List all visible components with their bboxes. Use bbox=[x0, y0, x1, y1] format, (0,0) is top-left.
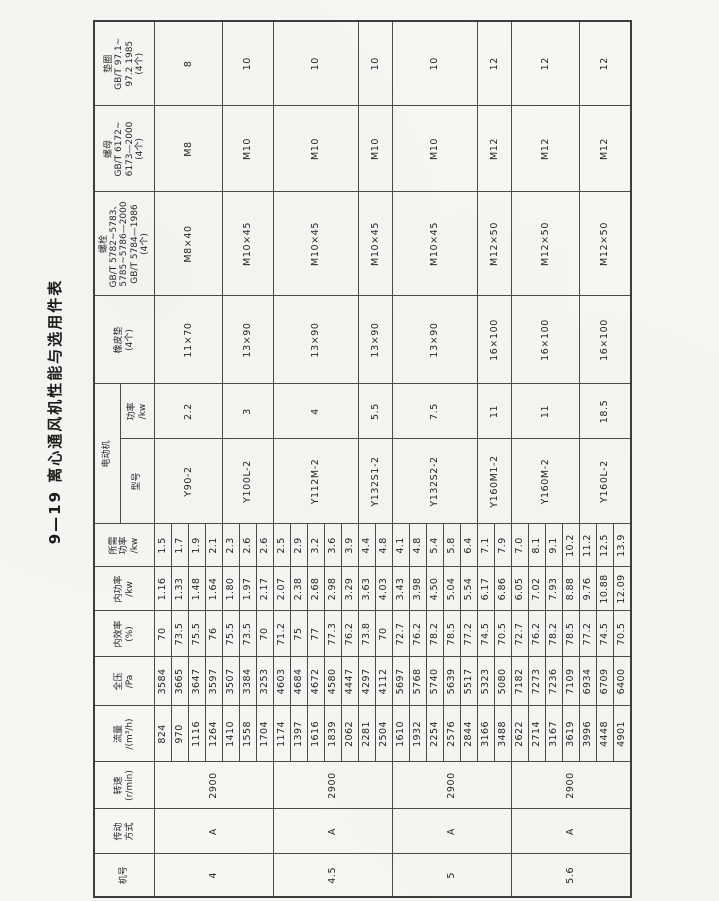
fan-performance-table: 机号 传动 方式 转速 (r/min) 流量 /(m³/h) 全压 /Pa 内效… bbox=[93, 20, 632, 898]
cell-chuandong: A bbox=[512, 809, 631, 854]
cell-xiangpidian: 16×100 bbox=[512, 296, 580, 384]
cell-suoxugonglv: 9.1 bbox=[546, 524, 563, 567]
cell-quanya: 3647 bbox=[189, 657, 206, 706]
cell-neixiaolv: 78.2 bbox=[427, 611, 444, 657]
cell-gonglv: 5.5 bbox=[359, 384, 393, 439]
cell-neixiaolv: 78.5 bbox=[444, 611, 461, 657]
cell-suoxugonglv: 2.5 bbox=[274, 524, 291, 567]
cell-liuliang: 1116 bbox=[189, 706, 206, 762]
cell-xiangpidian: 16×100 bbox=[580, 296, 631, 384]
cell-jihao: 4.5 bbox=[274, 854, 393, 897]
header-xiangpidian: 橡皮垫 (4个) bbox=[94, 296, 155, 384]
cell-quanya: 4684 bbox=[291, 657, 308, 706]
cell-suoxugonglv: 7.0 bbox=[512, 524, 529, 567]
cell-neixiaolv: 70.5 bbox=[614, 611, 631, 657]
cell-suoxugonglv: 2.9 bbox=[291, 524, 308, 567]
cell-xiangpidian: 11×70 bbox=[155, 296, 223, 384]
cell-liuliang: 1932 bbox=[410, 706, 427, 762]
cell-liuliang: 2622 bbox=[512, 706, 529, 762]
cell-quanya: 4447 bbox=[342, 657, 359, 706]
cell-dianquan: 8 bbox=[155, 21, 223, 106]
table-body: 4A29008243584701.161.5Y90-22.211×70M8×40… bbox=[155, 21, 631, 897]
cell-luomu: M12 bbox=[478, 106, 512, 192]
cell-neixiaolv: 72.7 bbox=[512, 611, 529, 657]
cell-liuliang: 1410 bbox=[223, 706, 240, 762]
cell-quanya: 5697 bbox=[393, 657, 410, 706]
cell-neixiaolv: 71.2 bbox=[274, 611, 291, 657]
header-luomu: 螺母 GB/T 6172~ 6173—2000 (4个) bbox=[94, 106, 155, 192]
cell-quanya: 5080 bbox=[495, 657, 512, 706]
cell-neixiaolv: 75.5 bbox=[189, 611, 206, 657]
cell-dianquan: 10 bbox=[223, 21, 274, 106]
cell-quanya: 5740 bbox=[427, 657, 444, 706]
cell-liuliang: 3166 bbox=[478, 706, 495, 762]
cell-neigonglv: 8.88 bbox=[563, 567, 580, 611]
cell-liuliang: 970 bbox=[172, 706, 189, 762]
cell-chuandong: A bbox=[393, 809, 512, 854]
cell-quanya: 3253 bbox=[257, 657, 274, 706]
cell-neixiaolv: 74.5 bbox=[478, 611, 495, 657]
cell-neixiaolv: 76.2 bbox=[342, 611, 359, 657]
cell-quanya: 7109 bbox=[563, 657, 580, 706]
cell-quanya: 5639 bbox=[444, 657, 461, 706]
cell-zhuansu: 2900 bbox=[274, 762, 393, 809]
cell-liuliang: 1704 bbox=[257, 706, 274, 762]
cell-quanya: 3597 bbox=[206, 657, 223, 706]
cell-quanya: 3584 bbox=[155, 657, 172, 706]
cell-dianquan: 10 bbox=[359, 21, 393, 106]
cell-neigonglv: 2.07 bbox=[274, 567, 291, 611]
header-gonglv: 功率 /kw bbox=[121, 384, 155, 439]
cell-dianquan: 10 bbox=[393, 21, 478, 106]
cell-luomu: M12 bbox=[512, 106, 580, 192]
cell-liuliang: 3167 bbox=[546, 706, 563, 762]
cell-quanya: 3507 bbox=[223, 657, 240, 706]
cell-suoxugonglv: 2.1 bbox=[206, 524, 223, 567]
cell-xiangpidian: 13×90 bbox=[223, 296, 274, 384]
cell-neixiaolv: 78.2 bbox=[546, 611, 563, 657]
cell-zhuansu: 2900 bbox=[155, 762, 274, 809]
cell-suoxugonglv: 3.2 bbox=[308, 524, 325, 567]
cell-liuliang: 1558 bbox=[240, 706, 257, 762]
cell-dianquan: 12 bbox=[580, 21, 631, 106]
cell-liuliang: 1174 bbox=[274, 706, 291, 762]
page-title: 9—19 离心通风机性能与选用件表 bbox=[44, 0, 65, 901]
cell-suoxugonglv: 5.8 bbox=[444, 524, 461, 567]
cell-neigonglv: 1.64 bbox=[206, 567, 223, 611]
cell-neigonglv: 7.02 bbox=[529, 567, 546, 611]
cell-chuandong: A bbox=[274, 809, 393, 854]
table-row: 4A29008243584701.161.5Y90-22.211×70M8×40… bbox=[155, 21, 172, 897]
cell-xiangpidian: 13×90 bbox=[393, 296, 478, 384]
header-neixiaolv: 内效率 (%) bbox=[94, 611, 155, 657]
cell-quanya: 5517 bbox=[461, 657, 478, 706]
cell-suoxugonglv: 1.7 bbox=[172, 524, 189, 567]
cell-neigonglv: 5.54 bbox=[461, 567, 478, 611]
cell-jihao: 5.6 bbox=[512, 854, 631, 897]
cell-dianquan: 10 bbox=[274, 21, 359, 106]
cell-neigonglv: 4.50 bbox=[427, 567, 444, 611]
cell-neigonglv: 7.93 bbox=[546, 567, 563, 611]
cell-neigonglv: 1.80 bbox=[223, 567, 240, 611]
header-diandongji: 电动机 bbox=[94, 384, 121, 524]
header-liuliang: 流量 /(m³/h) bbox=[94, 706, 155, 762]
header-quanya: 全压 /Pa bbox=[94, 657, 155, 706]
cell-suoxugonglv: 4.1 bbox=[393, 524, 410, 567]
cell-gonglv: 3 bbox=[223, 384, 274, 439]
cell-luomu: M10 bbox=[274, 106, 359, 192]
cell-liuliang: 2281 bbox=[359, 706, 376, 762]
cell-neixiaolv: 70 bbox=[155, 611, 172, 657]
cell-quanya: 4672 bbox=[308, 657, 325, 706]
cell-xiangpidian: 13×90 bbox=[274, 296, 359, 384]
cell-suoxugonglv: 10.2 bbox=[563, 524, 580, 567]
header-neigonglv: 内功率 /kw bbox=[94, 567, 155, 611]
cell-dianquan: 12 bbox=[478, 21, 512, 106]
cell-suoxugonglv: 5.4 bbox=[427, 524, 444, 567]
cell-liuliang: 3488 bbox=[495, 706, 512, 762]
cell-suoxugonglv: 7.9 bbox=[495, 524, 512, 567]
cell-liuliang: 2844 bbox=[461, 706, 478, 762]
cell-suoxugonglv: 1.9 bbox=[189, 524, 206, 567]
header-jihao: 机号 bbox=[94, 854, 155, 897]
cell-neigonglv: 6.86 bbox=[495, 567, 512, 611]
header-zhuansu: 转速 (r/min) bbox=[94, 762, 155, 809]
cell-chuandong: A bbox=[155, 809, 274, 854]
cell-liuliang: 3996 bbox=[580, 706, 597, 762]
cell-gonglv: 4 bbox=[274, 384, 359, 439]
cell-luoshuan: M10×45 bbox=[359, 192, 393, 296]
cell-luomu: M8 bbox=[155, 106, 223, 192]
cell-neixiaolv: 78.5 bbox=[563, 611, 580, 657]
cell-quanya: 4603 bbox=[274, 657, 291, 706]
cell-luoshuan: M12×50 bbox=[580, 192, 631, 296]
cell-xinghao: Y100L-2 bbox=[223, 439, 274, 524]
cell-neigonglv: 12.09 bbox=[614, 567, 631, 611]
cell-gonglv: 2.2 bbox=[155, 384, 223, 439]
cell-neigonglv: 1.97 bbox=[240, 567, 257, 611]
cell-xinghao: Y160M1-2 bbox=[478, 439, 512, 524]
header-suoxugonglv: 所需 功率 /kw bbox=[94, 524, 155, 567]
cell-neixiaolv: 74.5 bbox=[597, 611, 614, 657]
cell-gonglv: 7.5 bbox=[393, 384, 478, 439]
cell-neigonglv: 6.05 bbox=[512, 567, 529, 611]
cell-quanya: 5323 bbox=[478, 657, 495, 706]
header-luoshuan: 螺栓 GB/T 5782~5783、 5785~5786—2000 GB/T 5… bbox=[94, 192, 155, 296]
cell-neixiaolv: 77 bbox=[308, 611, 325, 657]
cell-neigonglv: 3.98 bbox=[410, 567, 427, 611]
cell-zhuansu: 2900 bbox=[393, 762, 512, 809]
cell-neigonglv: 2.17 bbox=[257, 567, 274, 611]
cell-suoxugonglv: 13.9 bbox=[614, 524, 631, 567]
cell-gonglv: 11 bbox=[478, 384, 512, 439]
cell-neixiaolv: 77.3 bbox=[325, 611, 342, 657]
cell-luomu: M10 bbox=[359, 106, 393, 192]
cell-neigonglv: 1.48 bbox=[189, 567, 206, 611]
cell-quanya: 7236 bbox=[546, 657, 563, 706]
table-row: 4.5A29001174460371.22.072.5Y112M-2413×90… bbox=[274, 21, 291, 897]
cell-neigonglv: 2.68 bbox=[308, 567, 325, 611]
cell-xinghao: Y132S2-2 bbox=[393, 439, 478, 524]
cell-suoxugonglv: 3.9 bbox=[342, 524, 359, 567]
cell-neixiaolv: 76.2 bbox=[410, 611, 427, 657]
cell-gonglv: 18.5 bbox=[580, 384, 631, 439]
cell-neixiaolv: 73.8 bbox=[359, 611, 376, 657]
cell-quanya: 3384 bbox=[240, 657, 257, 706]
cell-quanya: 7182 bbox=[512, 657, 529, 706]
cell-suoxugonglv: 12.5 bbox=[597, 524, 614, 567]
cell-neixiaolv: 75.5 bbox=[223, 611, 240, 657]
cell-xinghao: Y132S1-2 bbox=[359, 439, 393, 524]
cell-quanya: 4580 bbox=[325, 657, 342, 706]
cell-quanya: 5768 bbox=[410, 657, 427, 706]
cell-suoxugonglv: 1.5 bbox=[155, 524, 172, 567]
cell-liuliang: 4901 bbox=[614, 706, 631, 762]
table-header: 机号 传动 方式 转速 (r/min) 流量 /(m³/h) 全压 /Pa 内效… bbox=[94, 21, 155, 897]
cell-neigonglv: 2.98 bbox=[325, 567, 342, 611]
cell-quanya: 6400 bbox=[614, 657, 631, 706]
cell-luomu: M10 bbox=[393, 106, 478, 192]
header-chuandong: 传动 方式 bbox=[94, 809, 155, 854]
cell-luomu: M10 bbox=[223, 106, 274, 192]
cell-neigonglv: 10.88 bbox=[597, 567, 614, 611]
cell-neigonglv: 5.04 bbox=[444, 567, 461, 611]
cell-neixiaolv: 73.5 bbox=[172, 611, 189, 657]
cell-xinghao: Y90-2 bbox=[155, 439, 223, 524]
cell-liuliang: 1610 bbox=[393, 706, 410, 762]
cell-neixiaolv: 77.2 bbox=[461, 611, 478, 657]
cell-neixiaolv: 72.7 bbox=[393, 611, 410, 657]
cell-xiangpidian: 13×90 bbox=[359, 296, 393, 384]
cell-liuliang: 1616 bbox=[308, 706, 325, 762]
cell-suoxugonglv: 4.8 bbox=[376, 524, 393, 567]
cell-neigonglv: 1.33 bbox=[172, 567, 189, 611]
cell-luomu: M12 bbox=[580, 106, 631, 192]
cell-liuliang: 2714 bbox=[529, 706, 546, 762]
cell-liuliang: 824 bbox=[155, 706, 172, 762]
cell-liuliang: 1264 bbox=[206, 706, 223, 762]
cell-neigonglv: 3.43 bbox=[393, 567, 410, 611]
cell-neixiaolv: 75 bbox=[291, 611, 308, 657]
cell-liuliang: 3619 bbox=[563, 706, 580, 762]
table-row: 5.6A29002622718272.76.057.0Y160M-21116×1… bbox=[512, 21, 529, 897]
cell-gonglv: 11 bbox=[512, 384, 580, 439]
cell-neixiaolv: 70.5 bbox=[495, 611, 512, 657]
cell-neigonglv: 6.17 bbox=[478, 567, 495, 611]
cell-neixiaolv: 70 bbox=[257, 611, 274, 657]
cell-quanya: 6709 bbox=[597, 657, 614, 706]
cell-luoshuan: M12×50 bbox=[478, 192, 512, 296]
cell-liuliang: 2062 bbox=[342, 706, 359, 762]
scanned-document-page: 9—19 离心通风机性能与选用件表 机号 传动 方式 转速 (r/min) 流量… bbox=[0, 0, 719, 901]
cell-dianquan: 12 bbox=[512, 21, 580, 106]
cell-luoshuan: M10×45 bbox=[393, 192, 478, 296]
cell-luoshuan: M10×45 bbox=[274, 192, 359, 296]
cell-quanya: 7273 bbox=[529, 657, 546, 706]
cell-quanya: 4112 bbox=[376, 657, 393, 706]
cell-suoxugonglv: 7.1 bbox=[478, 524, 495, 567]
cell-suoxugonglv: 3.6 bbox=[325, 524, 342, 567]
header-xinghao: 型号 bbox=[121, 439, 155, 524]
cell-neigonglv: 4.03 bbox=[376, 567, 393, 611]
table-row: 5A29001610569772.73.434.1Y132S2-27.513×9… bbox=[393, 21, 410, 897]
cell-neixiaolv: 70 bbox=[376, 611, 393, 657]
cell-neigonglv: 1.16 bbox=[155, 567, 172, 611]
cell-neigonglv: 3.29 bbox=[342, 567, 359, 611]
cell-liuliang: 2504 bbox=[376, 706, 393, 762]
cell-neixiaolv: 76 bbox=[206, 611, 223, 657]
cell-liuliang: 1397 bbox=[291, 706, 308, 762]
cell-quanya: 6934 bbox=[580, 657, 597, 706]
cell-neixiaolv: 77.2 bbox=[580, 611, 597, 657]
cell-quanya: 3665 bbox=[172, 657, 189, 706]
cell-neixiaolv: 76.2 bbox=[529, 611, 546, 657]
cell-quanya: 4297 bbox=[359, 657, 376, 706]
cell-suoxugonglv: 6.4 bbox=[461, 524, 478, 567]
cell-xinghao: Y160L-2 bbox=[580, 439, 631, 524]
cell-suoxugonglv: 2.6 bbox=[240, 524, 257, 567]
cell-suoxugonglv: 4.8 bbox=[410, 524, 427, 567]
cell-suoxugonglv: 11.2 bbox=[580, 524, 597, 567]
cell-neigonglv: 3.63 bbox=[359, 567, 376, 611]
cell-neixiaolv: 73.5 bbox=[240, 611, 257, 657]
cell-suoxugonglv: 2.6 bbox=[257, 524, 274, 567]
cell-suoxugonglv: 2.3 bbox=[223, 524, 240, 567]
rotated-canvas: 9—19 离心通风机性能与选用件表 机号 传动 方式 转速 (r/min) 流量… bbox=[0, 0, 719, 901]
cell-liuliang: 2576 bbox=[444, 706, 461, 762]
cell-neigonglv: 2.38 bbox=[291, 567, 308, 611]
cell-suoxugonglv: 8.1 bbox=[529, 524, 546, 567]
cell-xiangpidian: 16×100 bbox=[478, 296, 512, 384]
cell-jihao: 5 bbox=[393, 854, 512, 897]
cell-liuliang: 2254 bbox=[427, 706, 444, 762]
header-dianquan: 垫圈 GB/T 97.1~ 97.2 1985 (4个) bbox=[94, 21, 155, 106]
cell-luoshuan: M10×45 bbox=[223, 192, 274, 296]
cell-neigonglv: 9.76 bbox=[580, 567, 597, 611]
cell-zhuansu: 2900 bbox=[512, 762, 631, 809]
cell-liuliang: 4448 bbox=[597, 706, 614, 762]
cell-xinghao: Y160M-2 bbox=[512, 439, 580, 524]
cell-suoxugonglv: 4.4 bbox=[359, 524, 376, 567]
cell-jihao: 4 bbox=[155, 854, 274, 897]
cell-xinghao: Y112M-2 bbox=[274, 439, 359, 524]
cell-liuliang: 1839 bbox=[325, 706, 342, 762]
cell-luoshuan: M8×40 bbox=[155, 192, 223, 296]
cell-luoshuan: M12×50 bbox=[512, 192, 580, 296]
